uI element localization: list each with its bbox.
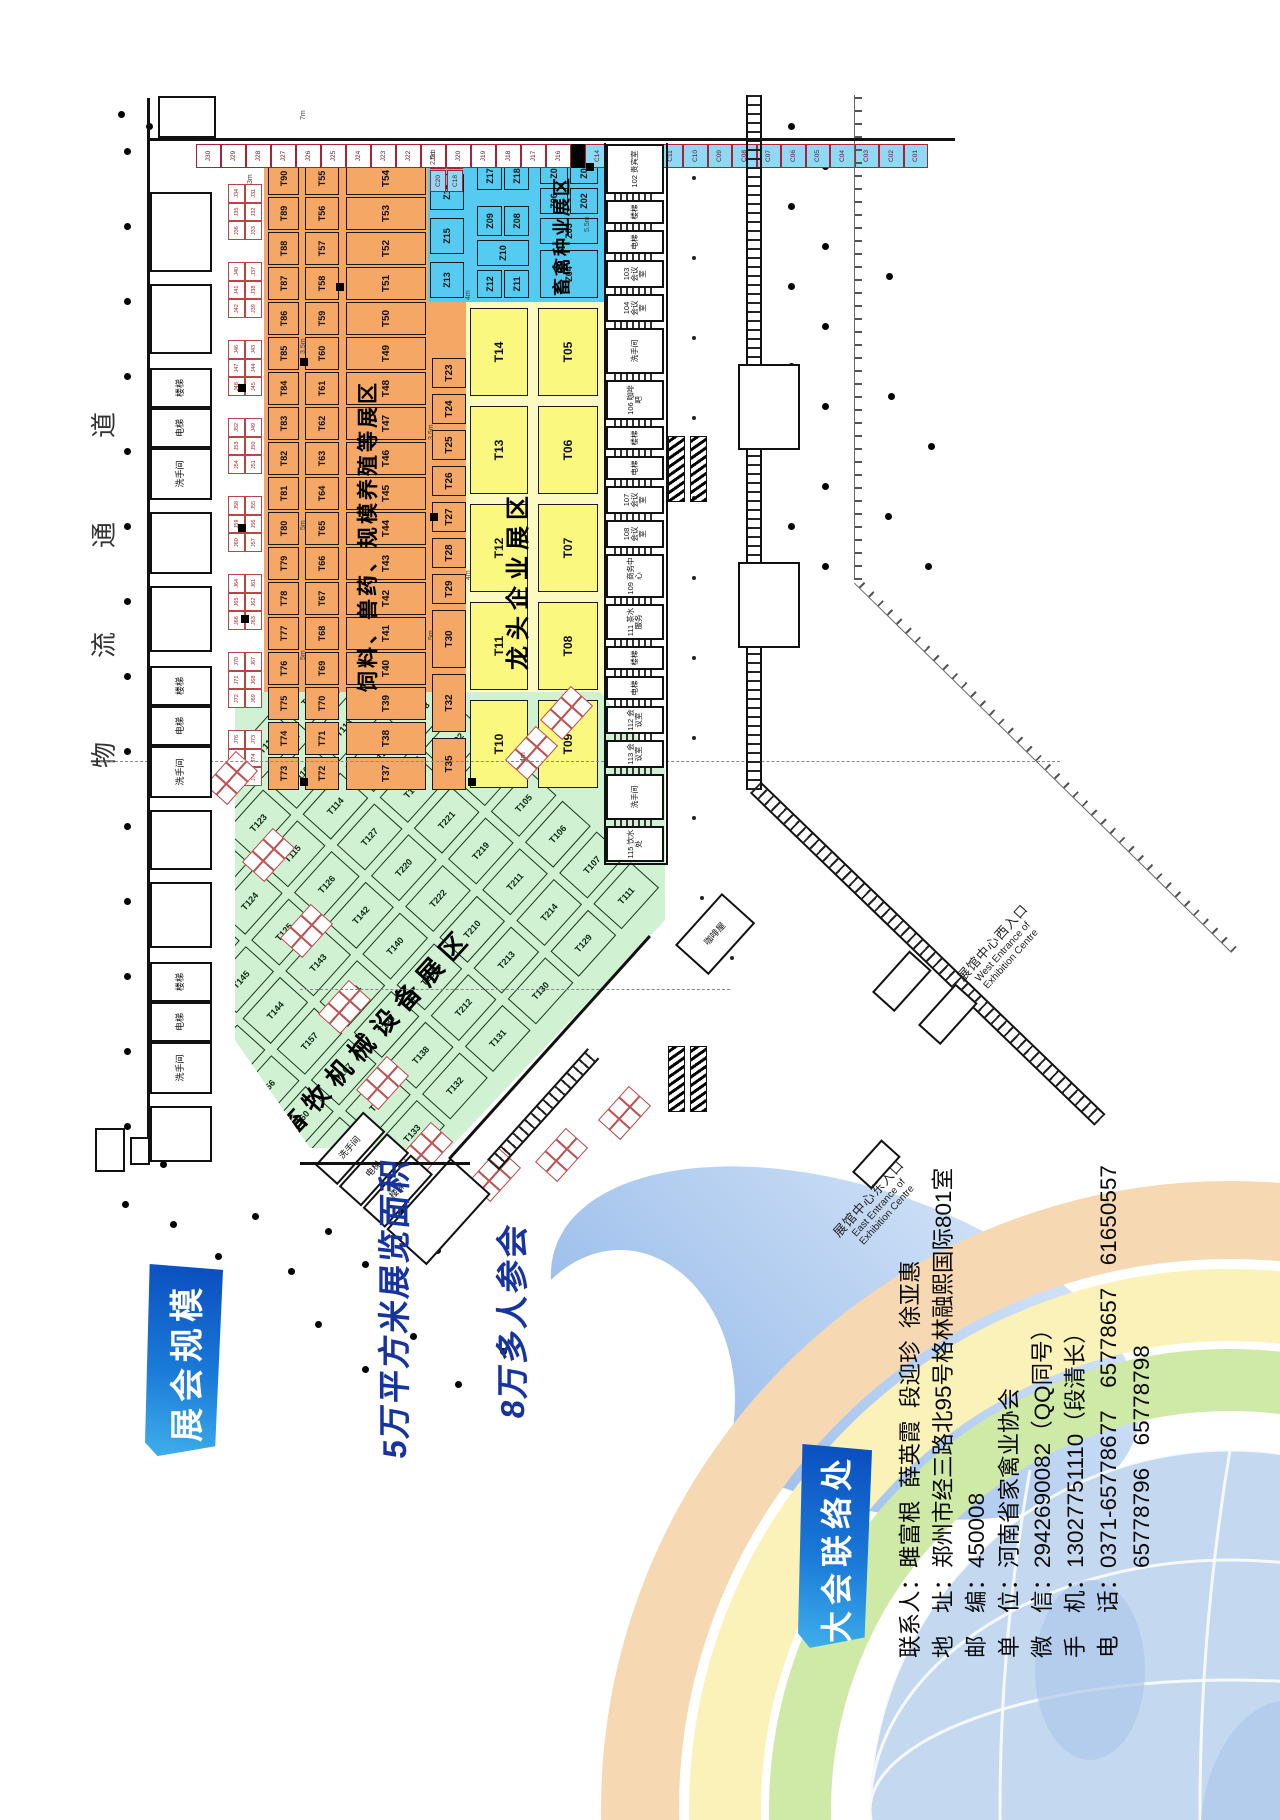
booth: T25 [432,430,466,460]
tree-icon [124,448,131,455]
tree-icon [822,403,829,410]
door-chain [614,420,656,426]
tree-icon [124,823,131,830]
service-rooms-mid: 115 饮水处洗手间113 会议室112 会议室电梯楼梯111 茶水服务109 … [606,144,664,862]
dimension-label: 5.5m [584,216,591,232]
booth: T28 [432,538,466,568]
booth: T80 [268,512,299,545]
booth: T58 [305,267,339,300]
booth: C20 [430,170,446,192]
booth: J38 [245,281,262,300]
booth: T64 [305,477,339,510]
dimension-label: 5m [428,630,435,640]
booth: T24 [432,394,466,424]
booth: J53 [228,437,245,456]
booth: J50 [245,437,262,456]
booth: J45 [245,377,262,396]
tree-icon [170,1221,177,1228]
booth: T88 [268,232,299,265]
room: 111 茶水服务 [606,604,664,640]
tree-icon [124,298,131,305]
room: 楼梯 [606,426,664,450]
booth: J17 [521,144,546,168]
door-chain [158,500,204,512]
booth: C04 [830,144,855,168]
booth: C02 [879,144,904,168]
dimension-label: 3.5m [300,338,307,354]
rooms-end-wall [604,863,668,865]
door-chain [614,640,656,646]
tree-icon [788,123,795,130]
door-chain [614,734,656,740]
contact-line: 联系人：雎富根 薛英霞 段迎珍 徐亚惠 [894,1165,927,1658]
door-chain [158,652,204,666]
pillar-icon [241,615,249,623]
contact-ribbon-title: 大会联络处 [812,1453,858,1643]
tree-icon [118,111,125,118]
door-chain [158,1094,204,1106]
booth: J58 [228,496,245,515]
booth: J20 [446,144,471,168]
door-chain [614,480,656,486]
booth: C09 [708,144,733,168]
room: 楼梯 [150,666,212,706]
booth: T82 [268,442,299,475]
booth: J46 [228,340,245,359]
booth: C10 [683,144,708,168]
door-chain [614,670,656,676]
west-entrance-label: 展馆中心西入口 West Entrance of Exhibition Cent… [952,899,1048,999]
room: 洗手间 [606,774,664,820]
logistics-corridor-label: 物流通道 [84,328,121,768]
pillar-icon [300,358,308,366]
booth: J29 [221,144,246,168]
rooms-bottom-wall [666,143,668,865]
corner-entrance-block [158,96,216,138]
booth: J67 [245,652,262,671]
booth: T86 [268,302,299,335]
booth: Z15 [430,218,464,254]
service-rooms-top: 洗手间电梯楼梯洗手间电梯楼梯洗手间电梯楼梯 [150,192,212,1162]
booth: Z02 [570,188,598,214]
room [150,810,212,870]
site-fence-diagonal [854,578,1237,953]
booth-row: T73T74T75T76T77T78T79T80T81T82T83T84T85T… [268,162,299,790]
booth: J61 [245,574,262,593]
booth: J62 [245,593,262,612]
room [150,284,212,354]
booth: J70 [228,652,245,671]
booth: T77 [268,617,299,650]
room: 109 商务中心 [606,554,664,598]
room: 103 会议室 [606,260,664,288]
booth: J68 [245,671,262,690]
tree-icon [124,1048,131,1055]
contact-line: 手 机：13027751110（段清长） [1059,1165,1092,1658]
booth: J35 [228,203,245,222]
tree-icon [122,1201,129,1208]
booth-row: Z13Z15Z16 [430,174,464,298]
column-dot [692,656,696,660]
booth: T159 [225,1134,291,1201]
booth: T07 [538,504,598,592]
room [150,586,212,652]
room: 电梯 [606,676,664,700]
tree-icon [288,1268,295,1275]
booth: J55 [245,496,262,515]
column-dot [692,816,696,820]
pillar-icon [586,163,594,171]
door-chain [614,548,656,554]
tree-icon [822,243,829,250]
booth: T87 [268,267,299,300]
hall-bottom-wall [604,143,606,865]
booth: J51 [245,455,262,474]
room: 113 会议室 [606,740,664,768]
door-chain [614,450,656,456]
site-fence [854,95,862,580]
room: 108 会议室 [606,520,664,548]
booth: T89 [268,197,299,230]
room: 107 会议室 [606,486,664,514]
tree-icon [888,393,895,400]
booth: J57 [245,533,262,552]
room: 楼梯 [150,368,212,408]
room: 洗手间 [150,746,212,798]
tree-icon [124,373,131,380]
booth: T68 [305,617,339,650]
dimension-label: 7m [300,110,307,120]
booth: J41 [228,281,245,300]
tree-icon [124,673,131,680]
door-chain [158,798,204,810]
booth: J43 [245,340,262,359]
tree-icon [124,223,131,230]
dimension-label: 5m [300,650,307,660]
room [150,1106,212,1162]
booth: J73 [245,730,262,749]
pillar-icon [238,524,246,532]
tree-icon [124,973,131,980]
outer-wall-diagonal [750,782,1106,1126]
room: 楼梯 [150,962,212,1002]
column-dot [700,896,704,900]
strip-pillar [571,144,585,168]
room: 106 咖啡吧 [606,380,664,420]
tree-icon [124,598,131,605]
tree-icon [325,1228,332,1235]
booth: T168 [259,1164,325,1231]
contact-line: 单 位：河南省家禽业协会 [993,1165,1026,1658]
booth: J40 [228,262,245,281]
booth: T81 [268,477,299,510]
booth: T78 [268,582,299,615]
booth: T60 [305,337,339,370]
contact-line: 65778796 65778798 [1125,1165,1158,1658]
booth: T61 [305,372,339,405]
dimension-label: 4m [465,290,472,300]
booth: T13 [470,406,528,494]
booth: T30 [432,610,466,668]
column-dot [692,176,696,180]
tree-icon [160,1161,167,1168]
booth-row: T35T32T30T29T28T27T26T25T24T23 [432,358,466,790]
pillar-icon [300,778,308,786]
booth-pair: Z12Z11 [477,270,529,298]
booth: T52 [346,232,426,265]
tree-icon [928,443,935,450]
booth: J69 [245,689,262,708]
booth: T32 [432,674,466,732]
booth: J76 [228,730,245,749]
booth: T150 [63,901,129,968]
corner-block [95,1128,125,1172]
booth: T62 [305,407,339,440]
door-chain [614,598,656,604]
contact-line: 电 话：0371-65778677 65778657 61650557 [1092,1165,1125,1658]
wall-booth-strip: J30J29J28J27J26J25J24J23J22J21J20J19J18J… [196,144,928,168]
door-chain [614,254,656,260]
room: 洗手间 [606,328,664,374]
booth: T14 [470,308,528,396]
room: 电梯 [150,408,212,448]
tree-icon [886,273,893,280]
room [150,192,212,272]
door-chain [158,354,204,368]
booth: T84 [268,372,299,405]
booth: J19 [471,144,496,168]
booth: J65 [228,593,245,612]
door-chain [614,768,656,774]
dimension-label: 5m [300,520,307,530]
room: 电梯 [150,1002,212,1042]
pillar-icon [430,513,438,521]
booth: C05 [806,144,831,168]
room: 104 会议室 [606,294,664,322]
room: 楼梯 [606,200,664,224]
booth: J18 [496,144,521,168]
door-chain [614,224,656,230]
room: 电梯 [150,706,212,746]
booth: J26 [296,144,321,168]
booth: J28 [246,144,271,168]
door-chain [614,700,656,706]
booth: T23 [432,358,466,388]
booth: J34 [228,184,245,203]
booth: T05 [538,308,598,396]
tree-icon [124,148,131,155]
booth: T59 [305,302,339,335]
scale-ribbon-title: 展会规模 [160,1282,209,1442]
booth: J54 [228,455,245,474]
column-dot [692,256,696,260]
booth: T35 [432,738,466,790]
booth-pair: Z10 [477,240,529,266]
column-dot [730,956,734,960]
tree-icon [124,898,131,905]
booth: T38 [346,722,426,755]
scale-ribbon: 展会规模 [145,1264,223,1460]
entrance-structure [738,562,800,648]
room: 楼梯 [606,646,664,670]
booth: T165 [54,980,120,1047]
booth: Z11 [504,270,529,298]
booth: T26 [432,466,466,496]
booth: J24 [346,144,371,168]
booth: J22 [396,144,421,168]
pillar-icon [336,283,344,291]
contact-line: 邮 编：450008 [960,1165,993,1658]
room: 电梯 [606,230,664,254]
booth: J44 [245,359,262,378]
booth: T56 [305,197,339,230]
booth: J72 [228,689,245,708]
entrance-structure [738,364,800,450]
pillar-icon [468,778,476,786]
door-chain [614,288,656,294]
booth: J56 [245,515,262,534]
booth: T83 [268,407,299,440]
contact-info-block: 联系人：雎富根 薛英霞 段迎珍 徐亚惠地 址：郑州市经三路北95号格林融熙国际8… [894,1165,1158,1658]
booth: Z08 [504,206,529,236]
tree-icon [215,1253,222,1260]
page-root: T166T150T149T148T121T117T109T100T165T161… [0,0,1280,1820]
blue-zone-label: 畜禽种业展区 [548,176,574,296]
booth: C01 [904,144,929,168]
tree-icon [822,483,829,490]
door-chain [614,514,656,520]
tree-icon [788,203,795,210]
tree-icon [822,563,829,570]
booth: J25 [321,144,346,168]
tree-icon [925,563,932,570]
door-chain [614,374,656,380]
dimension-label: 2.5m [430,149,437,165]
room: 洗手间 [150,1042,212,1094]
tree-icon [788,523,795,530]
door-chain [158,574,204,586]
booth: T50 [346,302,426,335]
booth: Z09 [477,206,502,236]
booth: T65 [305,512,339,545]
tree-icon [124,1123,131,1130]
contact-ribbon: 大会联络处 [798,1444,872,1652]
column-dot [692,576,696,580]
tree-icon [315,1321,322,1328]
booth: J23 [371,144,396,168]
booth: T75 [268,687,299,720]
hall-top-wall [147,98,150,1165]
tree-icon [252,1213,259,1220]
j-booth-cluster: J54J53J52J51J50J49 [228,418,262,474]
tree-icon [822,323,829,330]
room [150,512,212,574]
yellow-zone-label: 龙头企业展区 [498,490,533,670]
door-chain [614,322,656,328]
room: 洗手间 [150,448,212,500]
booth: T06 [538,406,598,494]
scale-line2: 8万多人参会 [486,1220,534,1420]
booth: J33 [245,221,262,240]
door-chain [158,948,204,962]
contact-line: 地 址：郑州市经三路北95号格林融熙国际801室 [927,1165,960,1658]
booth-pair: Z09Z08 [477,206,529,236]
column-dot [692,336,696,340]
booth: T08 [538,602,598,690]
booth: Z13 [430,262,464,298]
booth-row: T72T71T70T69T68T67T66T65T64T63T62T61T60T… [305,162,339,790]
booth: C06 [781,144,806,168]
booth: J39 [245,299,262,318]
booth: J71 [228,671,245,690]
booth: T63 [305,442,339,475]
hall-right-wall [147,138,955,141]
booth: J36 [228,221,245,240]
booth: J30 [196,144,221,168]
room: 112 会议室 [606,706,664,734]
room: 电梯 [606,456,664,480]
room: 102 贵宾室 [606,144,664,194]
door-chain [158,870,204,882]
booth: T85 [268,337,299,370]
booth: J32 [245,203,262,222]
corner-block [130,1137,150,1165]
room: 115 饮水处 [606,826,664,862]
booth: J16 [546,144,571,168]
booth: J52 [228,418,245,437]
booth: T67 [305,582,339,615]
booth: T49 [346,337,426,370]
booth: J42 [228,299,245,318]
booth: J47 [228,359,245,378]
tree-icon [455,1381,462,1388]
booth: J37 [245,262,262,281]
booth: T29 [432,574,466,604]
j-booth-cluster: J42J41J40J39J38J37 [228,262,262,318]
door-chain [614,194,656,200]
scale-line1: 5万平方米展览面积 [368,1155,416,1460]
booth: J49 [245,418,262,437]
orange-zone-label: 饲料、兽药、规模养殖等展区 [352,380,382,692]
booth: C18 [447,170,463,192]
dimension-label: 4m [465,570,472,580]
column-dot [692,736,696,740]
tree-icon [124,748,131,755]
tree-icon [788,283,795,290]
dimension-label: 3.5m [428,424,435,440]
booth: T51 [346,267,426,300]
booth: J31 [245,184,262,203]
booth: Z12 [477,270,502,298]
booth: T79 [268,547,299,580]
booth: T69 [305,652,339,685]
coffee-house-room: 咖啡屋 [675,893,755,975]
contact-line: 微 信：2942690082（QQ同号） [1026,1165,1059,1658]
booth: T57 [305,232,339,265]
door-chain [158,272,204,284]
room [150,882,212,948]
booth: T164 [88,1010,154,1077]
tree-icon [124,523,131,530]
booth: Z10 [477,240,529,266]
booth: T70 [305,687,339,720]
booth: T71 [305,722,339,755]
pillar-icon [238,384,246,392]
booth: T66 [305,547,339,580]
booth: T166 [20,949,86,1016]
door-chain [614,820,656,826]
j-booth-cluster: J36J35J34J33J32J31 [228,184,262,240]
